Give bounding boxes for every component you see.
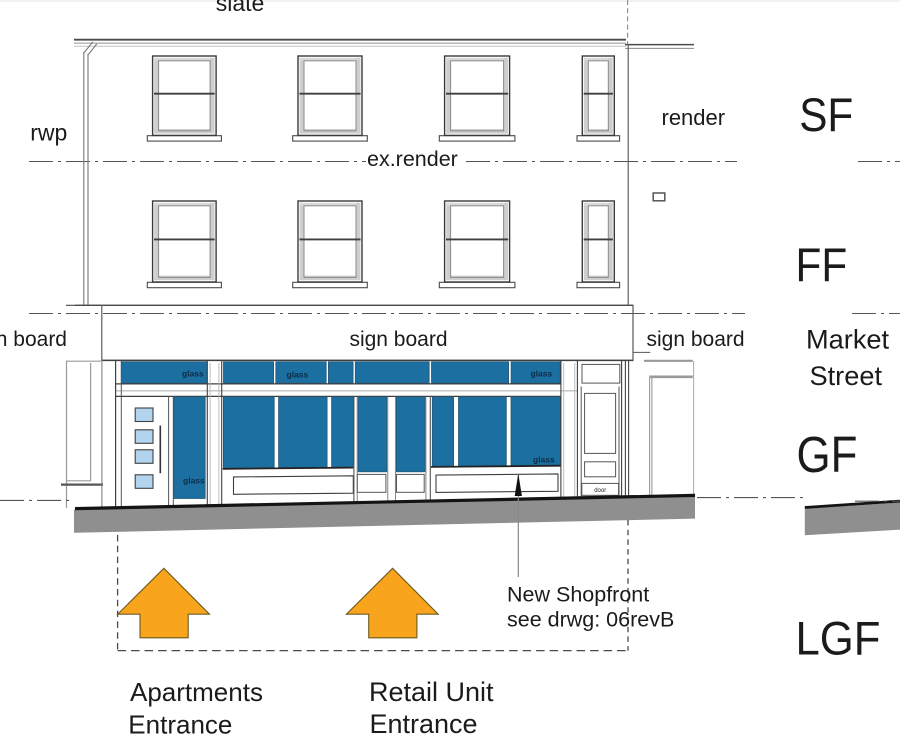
svg-text:New Shopfront: New Shopfront <box>507 583 649 607</box>
svg-text:glass: glass <box>182 369 204 379</box>
svg-text:FF: FF <box>796 240 848 292</box>
svg-text:see drwg: 06revB: see drwg: 06revB <box>507 607 674 631</box>
svg-text:render: render <box>662 105 726 130</box>
svg-text:Apartments: Apartments <box>130 677 263 707</box>
svg-text:SF: SF <box>799 90 853 142</box>
svg-text:rwp: rwp <box>30 120 67 146</box>
svg-text:glass: glass <box>287 370 309 380</box>
svg-text:glass: glass <box>183 476 205 486</box>
svg-text:Street: Street <box>810 360 883 391</box>
svg-text:LGF: LGF <box>796 612 881 665</box>
svg-text:glass: glass <box>533 454 555 464</box>
svg-text:door: door <box>594 488 606 494</box>
svg-text:Retail Unit: Retail Unit <box>369 677 494 707</box>
svg-text:Market: Market <box>806 324 890 355</box>
svg-text:Entrance: Entrance <box>128 710 232 740</box>
svg-text:sign board: sign board <box>647 328 745 351</box>
svg-text:ex.render: ex.render <box>367 147 458 171</box>
svg-text:slate: slate <box>216 0 265 16</box>
svg-text:sign board: sign board <box>0 328 67 351</box>
svg-text:GF: GF <box>797 427 858 484</box>
svg-text:Entrance: Entrance <box>370 709 478 739</box>
svg-text:glass: glass <box>531 369 553 379</box>
svg-text:sign board: sign board <box>349 328 447 351</box>
